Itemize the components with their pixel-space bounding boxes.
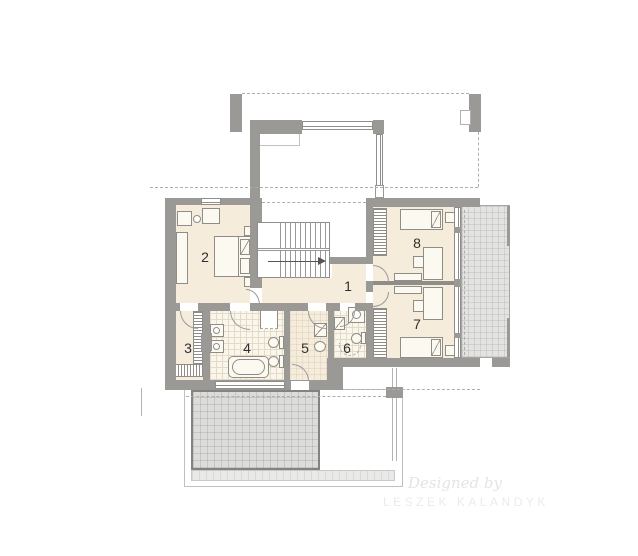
wall-corridor-south-4 (326, 303, 340, 311)
bed-blanket-line (238, 237, 239, 276)
pillow (240, 239, 250, 255)
sink (314, 341, 326, 352)
roof-dashed-right (478, 132, 479, 187)
wall-corner-block (327, 358, 343, 390)
pillow (431, 339, 441, 356)
window-mullion (454, 227, 461, 233)
wall-corridor-south-2 (198, 303, 230, 311)
desk (423, 247, 443, 280)
sideboard (394, 273, 422, 281)
wall-room6-room7 (366, 303, 373, 366)
terrace-sliding-dash (464, 210, 465, 355)
wall-room5-room6 (328, 311, 334, 358)
south-dashed-2 (186, 396, 386, 397)
wardrobe-hatch (373, 208, 387, 256)
roof-dashed-top (242, 93, 469, 94)
room-label-3: 3 (181, 340, 195, 356)
room-label-6: 6 (340, 340, 354, 356)
armchair (202, 208, 220, 224)
door-gap-room5-south (291, 381, 309, 390)
chair (413, 256, 424, 268)
south-edge-strip (191, 470, 395, 481)
window-room4 (215, 381, 285, 389)
bathtub-inner (232, 359, 265, 375)
room-label-8: 8 (410, 235, 424, 251)
wardrobe-hatch (174, 364, 203, 377)
east-terrace (461, 205, 510, 358)
wall-corridor-south-1 (165, 303, 180, 311)
stair-arrow-head (318, 257, 326, 265)
wardrobe-hatch (373, 308, 387, 358)
void-north-window (302, 121, 373, 130)
east-terrace-edge-top (507, 206, 510, 246)
room-label-4: 4 (240, 340, 254, 356)
basin-bowl (213, 343, 220, 350)
wardrobe-cabinet (176, 232, 188, 284)
room-label-7: 7 (410, 316, 424, 332)
void-north-wall (250, 120, 302, 134)
terrace-corner-block (492, 358, 510, 367)
void-dashed-edge (262, 202, 366, 203)
wall-niche-room3 (201, 333, 212, 351)
roof-pillar-left (230, 94, 242, 132)
void-notch (260, 134, 300, 146)
basin-bowl (213, 327, 220, 334)
sideboard (394, 286, 422, 294)
wall-south-east (342, 358, 480, 367)
pillow (240, 258, 250, 274)
left-roof-line (141, 388, 142, 416)
void-west-wall (250, 134, 260, 204)
side-table (193, 215, 201, 223)
wall-north-east (366, 198, 480, 207)
window-mullion (454, 279, 461, 287)
roof-pillar-notch (460, 110, 471, 125)
east-terrace-edge-bottom (507, 318, 510, 357)
window-room2 (201, 198, 221, 205)
wall-west (165, 198, 176, 390)
bidet (268, 356, 279, 367)
room-label-5: 5 (298, 340, 312, 356)
wall-room4-room5 (284, 311, 290, 380)
chair (413, 300, 424, 312)
hall-floor-east (332, 264, 366, 278)
stair-divider (258, 248, 329, 251)
wall-door-post (366, 281, 373, 292)
roof-dashed-eave (150, 187, 478, 188)
south-terrace (191, 390, 320, 470)
pillow (431, 211, 441, 228)
armchair (177, 211, 192, 226)
stair-arrow-shaft (268, 261, 318, 262)
desk (423, 287, 443, 320)
toilet (268, 337, 279, 348)
room-label-2: 2 (198, 249, 212, 265)
room-label-1: 1 (341, 278, 355, 294)
downpipe-line-left (392, 368, 393, 461)
watermark-name: LESZEK KALANDYK (383, 495, 549, 509)
watermark-script: Designed by (408, 474, 502, 492)
wall-room8-west (366, 207, 373, 264)
void-northeast-post (373, 120, 384, 134)
downpipe-line-right (396, 368, 397, 461)
door-arc-room2 (246, 289, 260, 305)
floor-plan: 1 2 3 4 5 6 7 8 Designed by LESZEK KALAN… (0, 0, 638, 556)
window-mullion (454, 333, 461, 338)
